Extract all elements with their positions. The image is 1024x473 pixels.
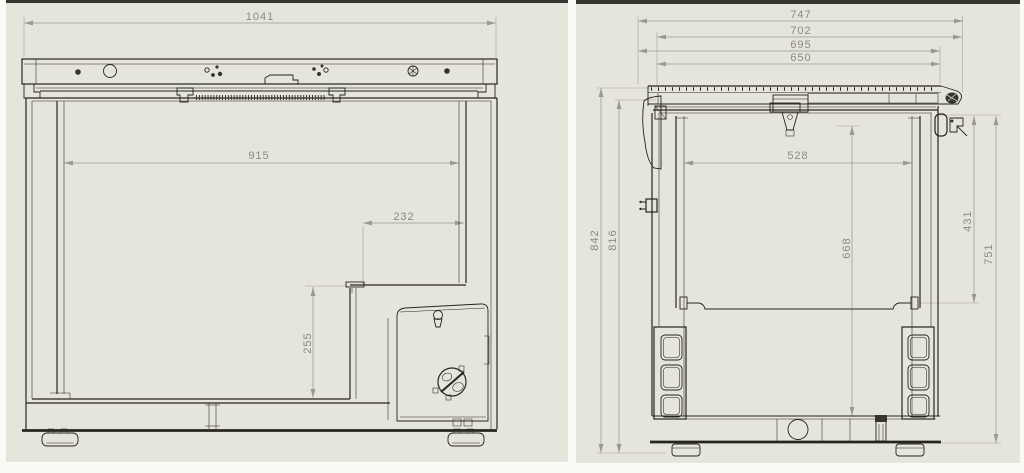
compartment-plug [434,311,443,328]
vent-grille-right [902,327,934,419]
dim-body-side-height-label: 751 [983,243,995,264]
basket-rail [680,297,918,309]
base-joint [205,403,220,429]
base-drain-circle [788,420,808,440]
lid-side [648,86,962,112]
lid-gasket [36,88,483,102]
latch-assembly [770,103,800,136]
front-view-drawing: 1041 915 232 255 [6,3,568,459]
dim-opening-depth-label: 650 [790,52,811,64]
front-view-panel: 1041 915 232 255 [6,0,568,462]
front-dimensions: 1041 915 232 255 [24,11,496,398]
cabinet-side [639,96,938,416]
dim-interior-width-label: 915 [248,150,269,162]
hinge-bracket [935,114,967,136]
side-view-drawing: 747 702 695 650 528 668 431 751 842 816 [576,4,1020,459]
side-feet [672,444,924,456]
compressor-step [26,285,466,403]
base-side [650,415,941,442]
dim-overall-depth-label: 747 [790,9,811,21]
compressor-fan-icon [433,366,466,400]
lock-knurled-screw [408,66,418,76]
dim-lid-depth-label: 702 [790,25,811,37]
dim-step-width-label: 232 [393,211,414,223]
dim-step-height-label: 255 [302,332,314,353]
lid-inset-panel [808,94,938,104]
dim-body-depth-label: 695 [790,39,811,51]
dim-interior-height-label: 668 [841,237,853,258]
dim-interior-depth-label: 528 [787,150,808,162]
base-component [875,415,887,441]
side-dimensions: 747 702 695 650 528 668 431 751 842 816 [589,9,1001,453]
left-wall-clip [639,199,657,212]
dim-overall-width-label: 1041 [246,11,274,23]
dim-overall-height-label: 842 [589,229,601,250]
dim-rail-height-label: 431 [962,210,974,231]
technical-drawing-page: 1041 915 232 255 [0,0,1024,473]
hinge-icon [935,86,962,104]
lid-handle-notch [265,75,298,84]
side-view-panel: 747 702 695 650 528 668 431 751 842 816 [576,0,1020,463]
lid-screws [75,65,450,78]
compressor-compartment [388,304,489,426]
cabinet-front [22,98,497,431]
dim-cabinet-height-label: 816 [607,229,619,250]
vent-grille-left [654,327,686,419]
lid-front [22,59,497,102]
